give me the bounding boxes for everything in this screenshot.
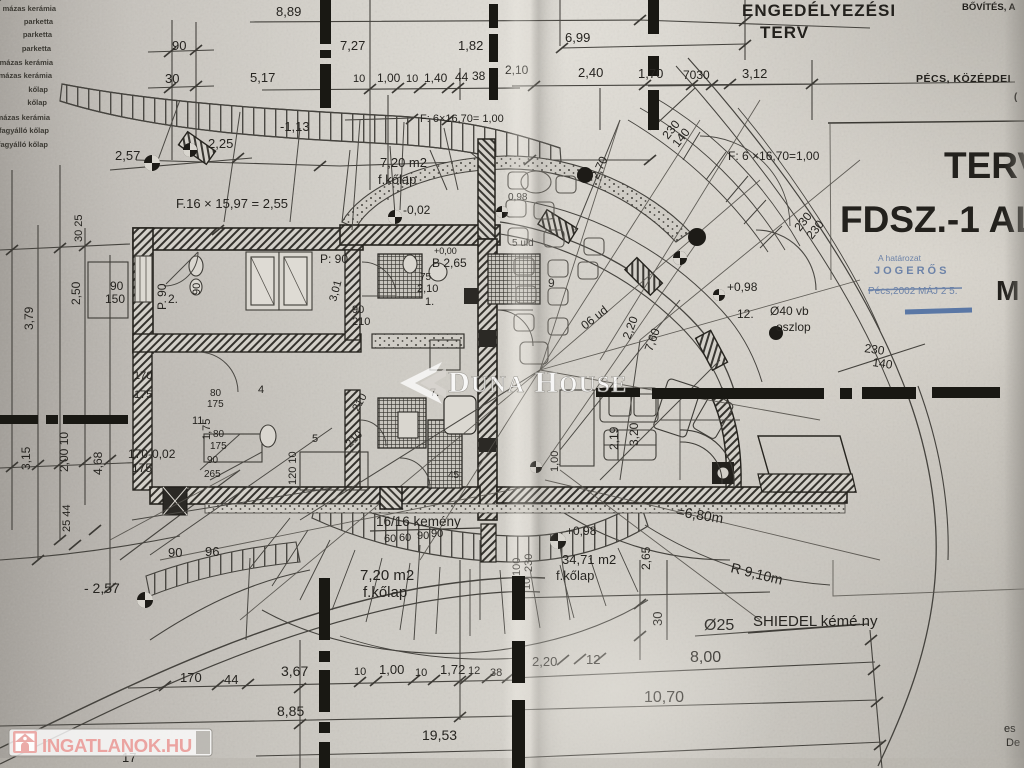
svg-text:2,25: 2,25: [208, 136, 233, 151]
svg-text:1,40: 1,40: [424, 71, 448, 85]
svg-text:6,99: 6,99: [565, 30, 590, 45]
svg-text:170: 170: [134, 370, 152, 382]
svg-text:mázas kerámia: mázas kerámia: [0, 71, 53, 80]
svg-text:210: 210: [352, 316, 370, 328]
svg-text:90: 90: [352, 304, 364, 316]
svg-text:+0,98: +0,98: [566, 524, 597, 538]
svg-text:170: 170: [180, 670, 202, 685]
svg-text:150: 150: [105, 292, 125, 306]
svg-text:2,19: 2,19: [607, 426, 621, 450]
svg-text:fagyálló kőlap: fagyálló kőlap: [0, 140, 48, 149]
svg-text:80: 80: [213, 429, 225, 440]
svg-text:-1,13: -1,13: [280, 119, 310, 134]
svg-text:2,40: 2,40: [578, 65, 603, 80]
svg-text:90: 90: [110, 279, 124, 293]
svg-text:8,89: 8,89: [276, 4, 301, 19]
svg-text:3,79: 3,79: [22, 306, 36, 330]
svg-text:Pécs,2002 MÁJ 2 5.: Pécs,2002 MÁJ 2 5.: [868, 284, 958, 297]
svg-text:3,20: 3,20: [627, 422, 641, 446]
svg-text:TERV: TERV: [760, 23, 809, 42]
svg-text:120 10: 120 10: [287, 451, 299, 485]
svg-text:5: 5: [312, 433, 318, 445]
svg-text:1,00: 1,00: [377, 71, 401, 85]
svg-text:7,20 m2: 7,20 m2: [380, 155, 427, 170]
svg-text:3,67: 3,67: [281, 663, 308, 679]
svg-text:SHIEDEL kémé ny: SHIEDEL kémé ny: [753, 613, 878, 630]
svg-text:A határozat: A határozat: [878, 253, 922, 263]
svg-text:90: 90: [168, 545, 182, 560]
svg-text:175: 175: [207, 399, 224, 410]
svg-text:parketta: parketta: [24, 17, 54, 26]
svg-text:34,71 m2: 34,71 m2: [562, 552, 616, 567]
svg-text:mázas kerámia: mázas kerámia: [0, 113, 51, 122]
svg-text:-0,02: -0,02: [403, 203, 431, 217]
svg-text:8,85: 8,85: [277, 703, 304, 719]
svg-text:f.kőlap: f.kőlap: [363, 584, 407, 601]
svg-text:1,82: 1,82: [458, 38, 483, 53]
svg-text:1,00: 1,00: [379, 662, 404, 677]
svg-text:- 2,57: - 2,57: [84, 580, 120, 596]
svg-text:25 44: 25 44: [61, 504, 73, 532]
svg-text:2,00 10: 2,00 10: [57, 432, 71, 472]
svg-text:3,12: 3,12: [742, 66, 767, 81]
svg-text:f.kőlap: f.kőlap: [378, 172, 416, 187]
svg-text:2,65: 2,65: [639, 546, 653, 570]
svg-text:90: 90: [191, 283, 203, 295]
svg-text:7030: 7030: [683, 68, 710, 82]
svg-text:10: 10: [353, 73, 365, 85]
svg-text:ENGEDÉLYEZÉSI: ENGEDÉLYEZÉSI: [742, 1, 896, 20]
svg-text:2,50: 2,50: [69, 281, 83, 305]
svg-text:kőlap: kőlap: [27, 98, 47, 107]
svg-text:4: 4: [258, 384, 264, 396]
svg-text:90: 90: [417, 530, 429, 542]
svg-text:JOGERŐS: JOGERŐS: [874, 264, 949, 277]
svg-text:Ø40 vb: Ø40 vb: [770, 304, 809, 318]
svg-text:FDSZ.-1 ALA: FDSZ.-1 ALA: [840, 199, 1024, 240]
svg-text:12.: 12.: [737, 307, 754, 321]
svg-text:80: 80: [210, 388, 222, 399]
svg-text:45: 45: [448, 470, 460, 481]
svg-text:INGATLANOK.HU: INGATLANOK.HU: [42, 735, 192, 756]
svg-text:1,75: 1,75: [201, 419, 213, 440]
svg-text:7,27: 7,27: [340, 38, 365, 53]
svg-text:F: 6×16,70= 1,00: F: 6×16,70= 1,00: [420, 113, 504, 125]
svg-text:fagyálló kőlap: fagyálló kőlap: [0, 126, 49, 135]
svg-text:P: 90: P: 90: [320, 252, 348, 266]
svg-text:175: 175: [134, 389, 152, 401]
svg-text:16/16 kemény: 16/16 kemény: [376, 514, 461, 529]
svg-text:P. 90: P. 90: [155, 283, 169, 310]
svg-text:1.: 1.: [425, 296, 434, 308]
svg-text:175: 175: [210, 441, 227, 452]
svg-text:265: 265: [204, 469, 221, 480]
svg-text:+0,98: +0,98: [727, 280, 758, 294]
svg-text:B 2,65: B 2,65: [432, 256, 467, 270]
svg-text:90: 90: [172, 38, 186, 53]
svg-text:170-0,02: 170-0,02: [128, 447, 176, 461]
svg-text:60: 60: [399, 532, 411, 544]
svg-text:1,70: 1,70: [638, 66, 663, 81]
svg-text:2,10: 2,10: [417, 283, 438, 295]
svg-text:F.16 × 15,97 = 2,55: F.16 × 15,97 = 2,55: [176, 196, 288, 211]
svg-text:2.: 2.: [168, 292, 178, 306]
svg-text:2,57: 2,57: [115, 148, 140, 163]
svg-text:5,17: 5,17: [250, 70, 275, 85]
svg-text:30 25: 30 25: [73, 214, 85, 242]
svg-text:4,68: 4,68: [91, 451, 105, 475]
svg-text:parketta: parketta: [22, 44, 52, 53]
svg-text:3,15: 3,15: [19, 446, 33, 470]
svg-text:F: 6 ×16,70=1,00: F: 6 ×16,70=1,00: [728, 149, 820, 163]
svg-text:38: 38: [472, 69, 486, 83]
svg-text:+0,00: +0,00: [434, 246, 457, 256]
svg-text:mázas kerámia: mázas kerámia: [3, 4, 57, 13]
svg-text:96: 96: [205, 544, 219, 559]
svg-text:30: 30: [165, 71, 179, 86]
svg-text:parketta: parketta: [23, 30, 53, 39]
svg-text:175: 175: [132, 461, 152, 475]
svg-text:7,20 m2: 7,20 m2: [360, 567, 414, 584]
svg-text:90: 90: [207, 455, 219, 466]
svg-text:10: 10: [406, 73, 418, 85]
svg-text:kőlap: kőlap: [28, 85, 48, 94]
svg-text:10: 10: [415, 667, 427, 679]
svg-text:75: 75: [420, 272, 432, 283]
svg-text:PÉCS, KÖZÉPDEI: PÉCS, KÖZÉPDEI: [916, 72, 1011, 85]
svg-text:44: 44: [455, 70, 469, 84]
svg-text:10: 10: [354, 666, 366, 678]
svg-text:90: 90: [431, 528, 443, 540]
svg-text:44: 44: [224, 672, 238, 687]
svg-text:oszlop: oszlop: [776, 320, 811, 334]
svg-text:140: 140: [872, 355, 894, 372]
svg-text:60: 60: [384, 533, 396, 545]
svg-text:19,53: 19,53: [422, 727, 457, 743]
svg-text:mázas kerámia: mázas kerámia: [0, 58, 54, 67]
